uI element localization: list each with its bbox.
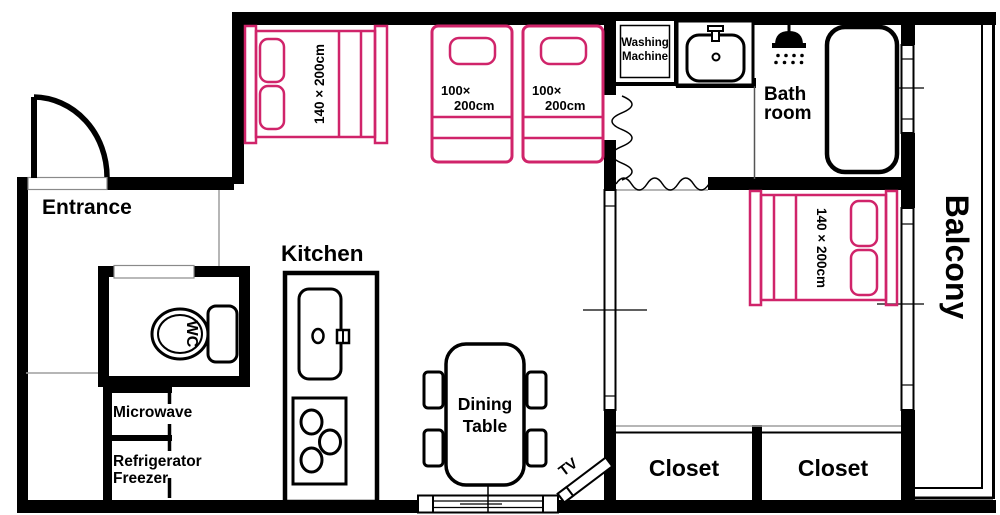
floor-plan: Entrance Kitchen Washing Machine Bath ro…	[0, 0, 1000, 515]
wall-fridge-left	[103, 387, 112, 503]
stove-burner	[320, 430, 341, 454]
balcony-label: Balcony	[939, 195, 975, 320]
bathroom-label: room	[764, 103, 812, 124]
closet-right-label: Closet	[798, 455, 869, 481]
dining-set	[424, 344, 546, 485]
dining-table	[446, 344, 524, 485]
shower-icon	[772, 20, 806, 64]
microwave-label: Microwave	[113, 404, 193, 421]
wall-wc-bottom	[98, 376, 250, 387]
wc-label: WC	[183, 321, 200, 348]
bed-pillow	[541, 38, 586, 64]
entrance-swing-door	[34, 97, 107, 178]
tv-label: TV	[556, 455, 582, 480]
wc-door	[114, 266, 194, 279]
accordion-curtains	[612, 96, 709, 190]
dining-table-label: Dining	[458, 394, 512, 414]
bed-size-label: 140 × 200cm	[312, 44, 327, 124]
wall-right-b	[901, 133, 915, 208]
closet-left-label: Closet	[649, 455, 720, 481]
chair	[424, 372, 443, 408]
entrance-door-threshold	[28, 178, 107, 190]
entrance-door-arc	[34, 97, 107, 177]
wall-top-left-vertical	[232, 12, 244, 184]
bed-pillow	[450, 38, 495, 64]
wall-bottom-right	[558, 500, 996, 513]
sink-drain	[313, 329, 324, 343]
kitchen-counter	[285, 273, 377, 502]
wall-hall-b	[604, 140, 616, 190]
wall-closet-divider	[752, 425, 762, 513]
wall-right-c	[901, 410, 915, 513]
bed-pillow	[851, 201, 877, 246]
washing-machine-label: Machine	[622, 51, 668, 63]
bathtub	[827, 27, 897, 172]
dining-table-label: Table	[463, 416, 508, 436]
bed-footboard	[750, 191, 761, 305]
wall-wc-left	[98, 266, 109, 387]
wall-left	[17, 177, 28, 513]
curtain-horizontal	[616, 178, 709, 190]
bed-footboard	[375, 26, 387, 143]
bed-pillow	[851, 250, 877, 295]
chair	[527, 430, 546, 466]
bed-size-label: 100×	[441, 83, 471, 98]
drain-icon	[713, 54, 720, 61]
wall-entrance-right	[107, 177, 234, 190]
washing-machine-label: Washing	[621, 37, 669, 49]
stove-burner	[301, 410, 322, 434]
living-bedroom-sliding-door	[583, 190, 647, 410]
bed-headboard	[886, 191, 897, 305]
wall-wc-top-a	[98, 266, 114, 277]
bathroom-label: Bath	[764, 84, 806, 105]
chair	[527, 372, 546, 408]
washbasin	[677, 21, 753, 85]
bed-pillow	[260, 86, 284, 129]
wall-fridge-divider	[103, 435, 172, 441]
floor-plan-svg: Entrance Kitchen Washing Machine Bath ro…	[0, 0, 1000, 515]
wall-right-a	[901, 12, 915, 45]
bed-size-label: 200cm	[454, 98, 494, 113]
bed-headboard	[245, 26, 256, 143]
faucet-icon	[712, 31, 719, 41]
entrance-label: Entrance	[42, 196, 132, 219]
kitchen-label: Kitchen	[281, 241, 364, 266]
bed-size-label: 200cm	[545, 98, 585, 113]
bed-size-label: 100×	[532, 83, 562, 98]
refrigerator-label: Freezer	[113, 470, 168, 487]
wall-wc-right	[239, 266, 250, 387]
wall-fridge-top	[103, 387, 172, 393]
bed-size-label: 140 × 200cm	[814, 208, 829, 288]
wall-bathroom-bedroom	[708, 177, 915, 190]
bed-pillow	[260, 39, 284, 82]
stove-burner	[301, 448, 322, 472]
bedroom-balcony-sliding-door	[877, 208, 924, 410]
toilet-tank	[208, 306, 237, 362]
refrigerator-label: Refrigerator	[113, 453, 202, 470]
chair	[424, 430, 443, 466]
wall-wc-top-b	[194, 266, 250, 277]
